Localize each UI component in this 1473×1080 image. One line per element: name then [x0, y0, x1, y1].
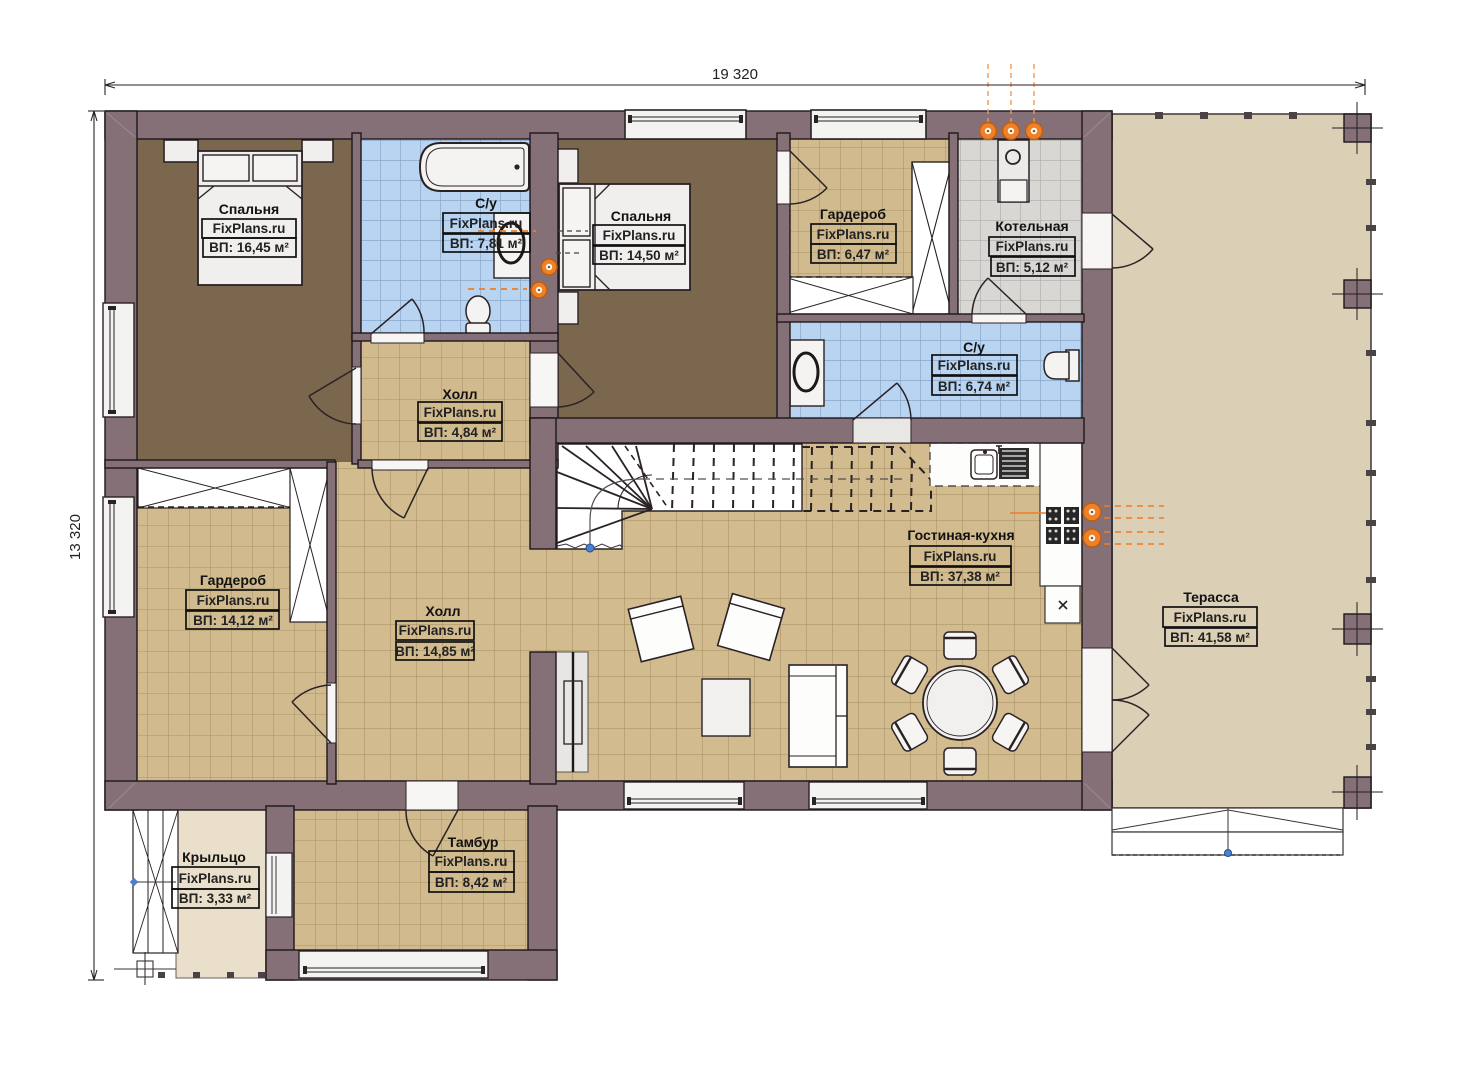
svg-text:FixPlans.ru: FixPlans.ru	[603, 228, 676, 243]
svg-text:ВП: 14,85 м²: ВП: 14,85 м²	[395, 644, 475, 659]
svg-text:19 320: 19 320	[712, 66, 758, 83]
svg-text:ВП: 16,45 м²: ВП: 16,45 м²	[209, 240, 289, 255]
svg-text:FixPlans.ru: FixPlans.ru	[1174, 610, 1247, 625]
svg-text:Спальня: Спальня	[219, 201, 279, 217]
svg-text:FixPlans.ru: FixPlans.ru	[179, 871, 252, 886]
svg-text:FixPlans.ru: FixPlans.ru	[996, 239, 1069, 254]
svg-text:С/у: С/у	[963, 339, 985, 355]
svg-text:ВП: 4,84 м²: ВП: 4,84 м²	[424, 425, 497, 440]
svg-text:FixPlans.ru: FixPlans.ru	[817, 227, 890, 242]
svg-text:Холл: Холл	[425, 603, 460, 619]
svg-text:FixPlans.ru: FixPlans.ru	[924, 549, 997, 564]
svg-text:Гардероб: Гардероб	[200, 572, 267, 588]
svg-text:Спальня: Спальня	[611, 208, 671, 224]
svg-text:Котельная: Котельная	[995, 218, 1068, 234]
svg-text:Гардероб: Гардероб	[820, 206, 887, 222]
svg-text:Крыльцо: Крыльцо	[182, 849, 246, 865]
svg-text:FixPlans.ru: FixPlans.ru	[450, 216, 523, 231]
svg-text:FixPlans.ru: FixPlans.ru	[938, 358, 1011, 373]
svg-text:ВП: 5,12 м²: ВП: 5,12 м²	[996, 260, 1069, 275]
svg-text:FixPlans.ru: FixPlans.ru	[197, 593, 270, 608]
svg-text:FixPlans.ru: FixPlans.ru	[435, 854, 508, 869]
svg-text:ВП: 3,33 м²: ВП: 3,33 м²	[179, 891, 252, 906]
svg-text:С/у: С/у	[475, 195, 497, 211]
svg-text:13 320: 13 320	[67, 514, 84, 560]
svg-text:ВП: 14,50 м²: ВП: 14,50 м²	[599, 248, 679, 263]
svg-text:ВП: 6,74 м²: ВП: 6,74 м²	[938, 379, 1011, 394]
svg-text:ВП: 8,42 м²: ВП: 8,42 м²	[435, 875, 508, 890]
svg-text:Гостиная-кухня: Гостиная-кухня	[907, 527, 1014, 543]
svg-text:ВП: 14,12 м²: ВП: 14,12 м²	[193, 613, 273, 628]
svg-text:FixPlans.ru: FixPlans.ru	[424, 405, 497, 420]
svg-text:FixPlans.ru: FixPlans.ru	[399, 623, 472, 638]
svg-text:Холл: Холл	[442, 386, 477, 402]
svg-text:Терасса: Терасса	[1183, 589, 1239, 605]
svg-text:ВП: 41,58 м²: ВП: 41,58 м²	[1170, 630, 1250, 645]
svg-text:Тамбур: Тамбур	[448, 834, 499, 850]
svg-text:FixPlans.ru: FixPlans.ru	[213, 221, 286, 236]
svg-text:ВП: 6,47 м²: ВП: 6,47 м²	[817, 247, 890, 262]
svg-text:ВП: 37,38 м²: ВП: 37,38 м²	[920, 569, 1000, 584]
svg-text:ВП: 7,81 м²: ВП: 7,81 м²	[450, 236, 523, 251]
